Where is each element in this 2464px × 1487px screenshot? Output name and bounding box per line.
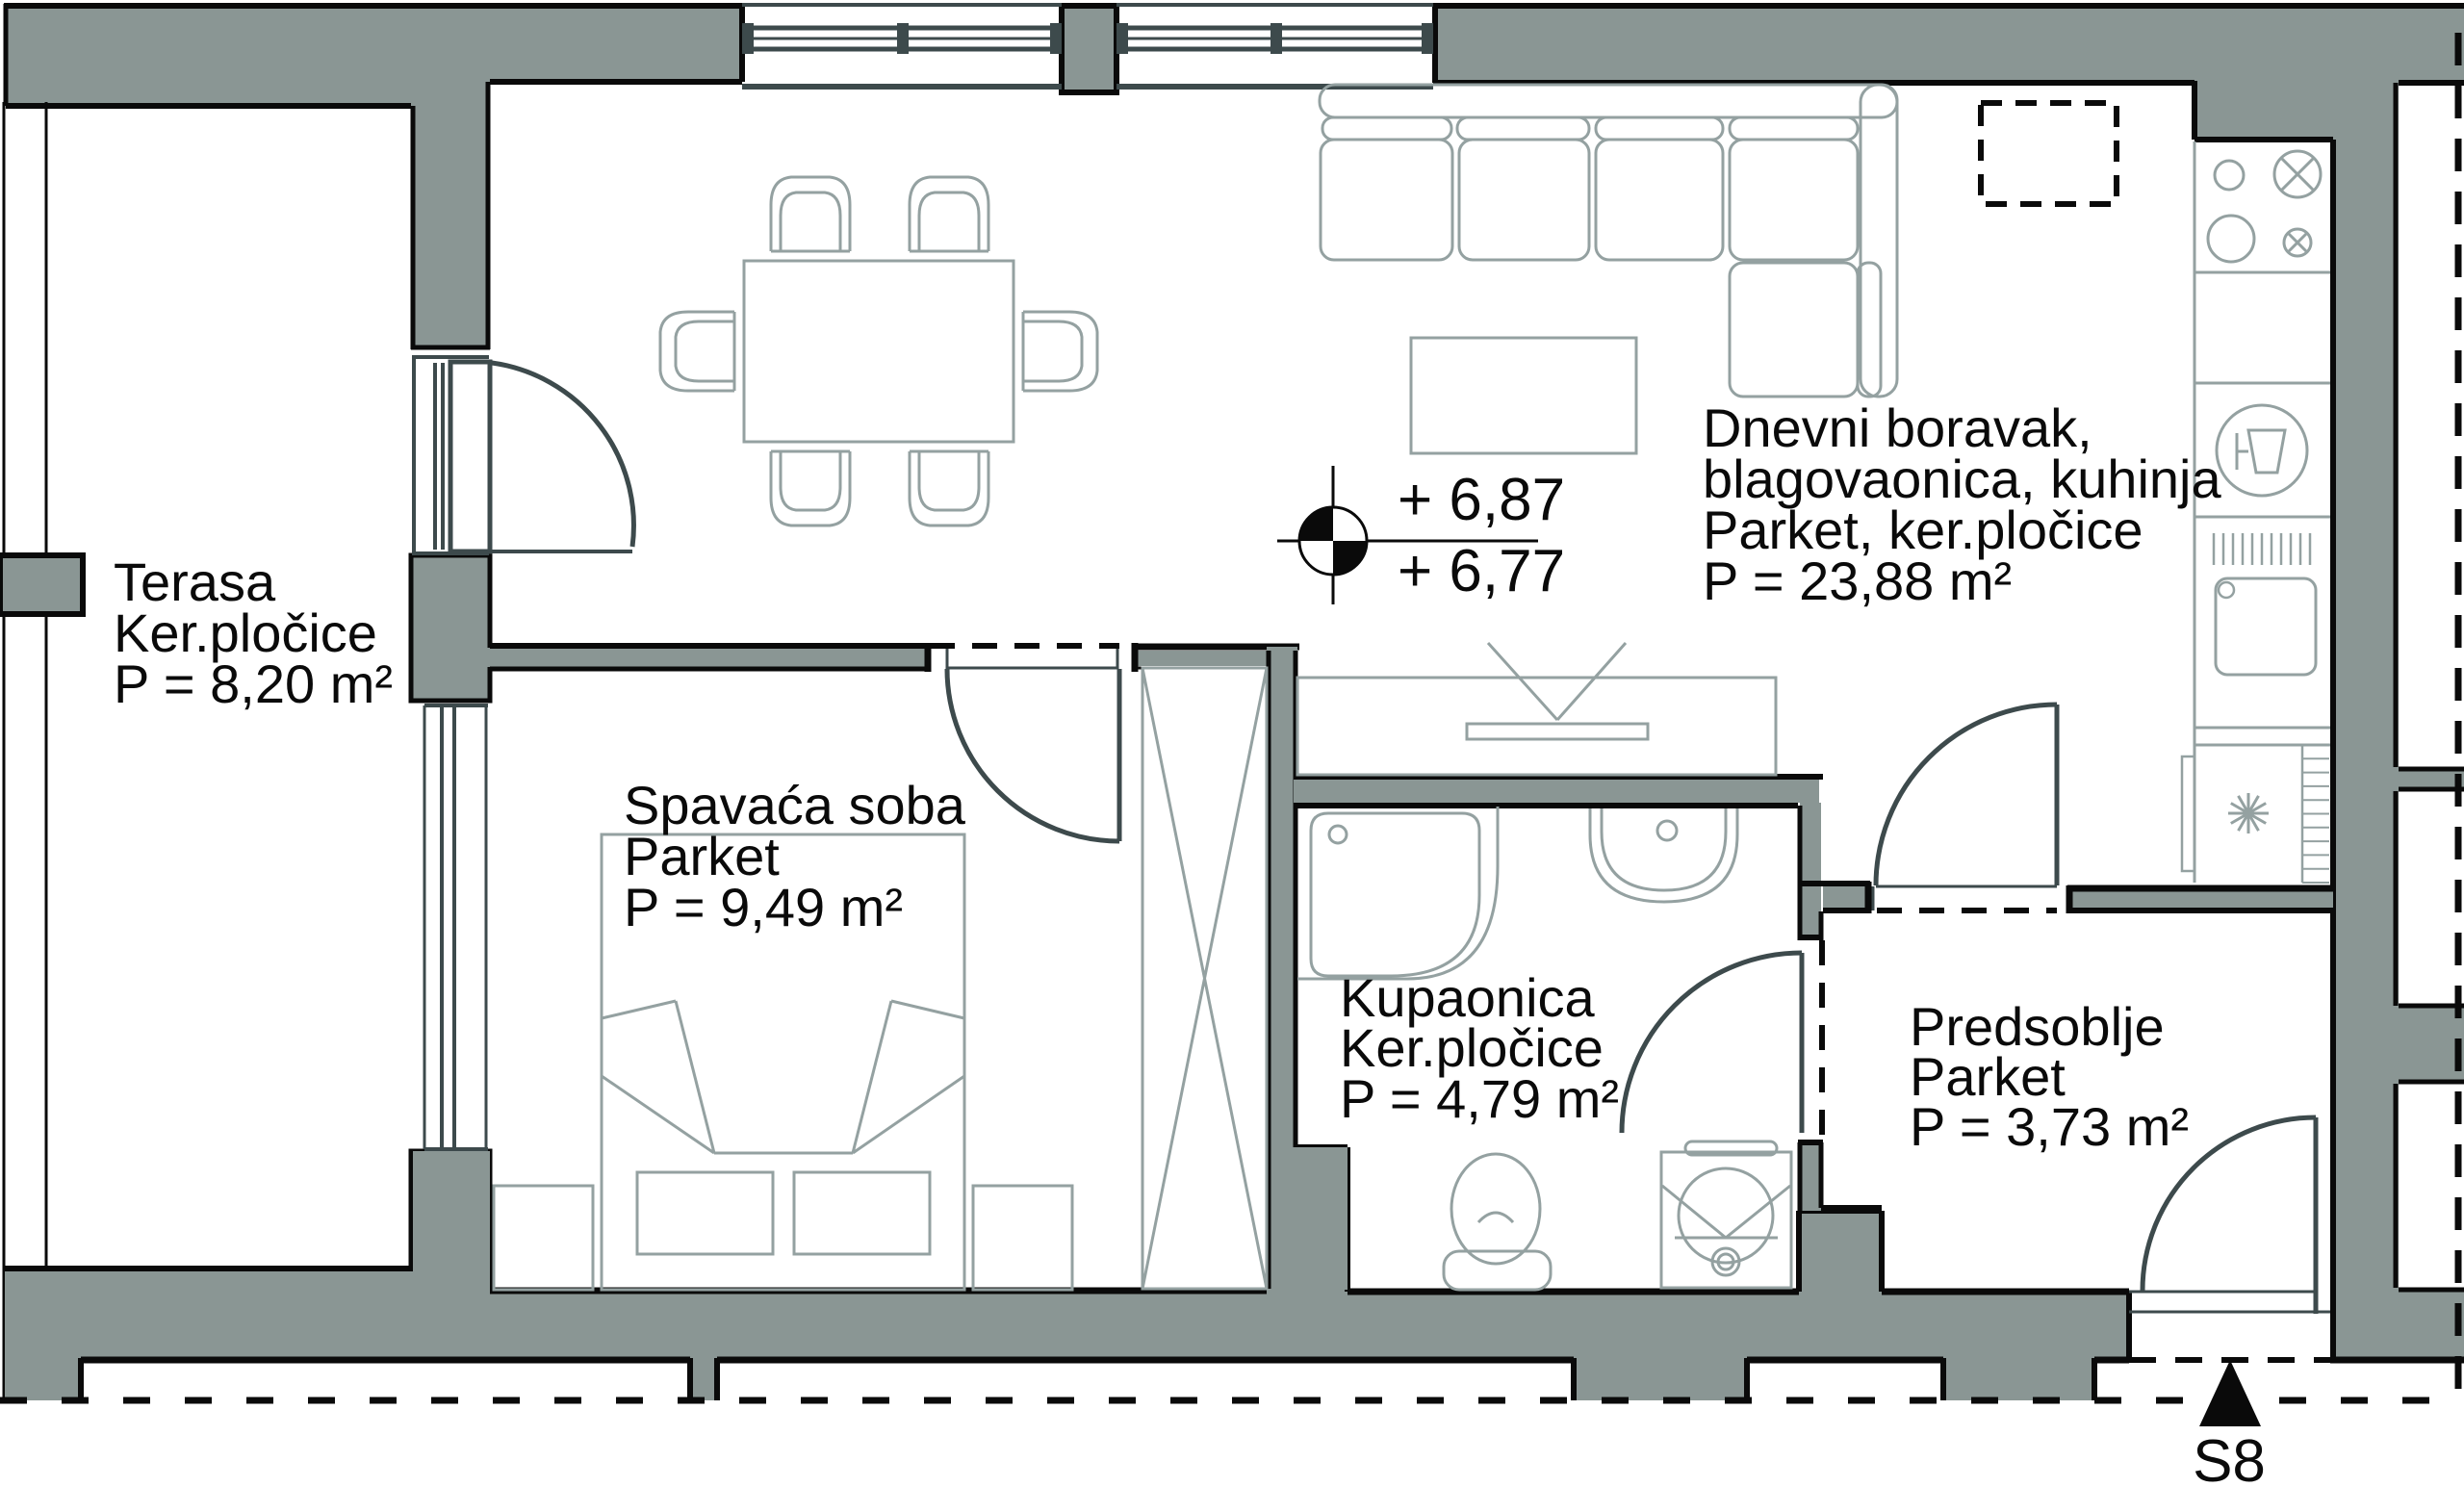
svg-text:S8: S8: [2193, 1428, 2266, 1487]
svg-text:+ 6,87: + 6,87: [1398, 467, 1565, 533]
svg-text:P = 4,79 m²: P = 4,79 m²: [1340, 1068, 1619, 1129]
svg-text:P = 9,49 m²: P = 9,49 m²: [624, 877, 903, 937]
svg-text:P = 8,20 m²: P = 8,20 m²: [114, 654, 393, 714]
svg-text:P = 3,73 m²: P = 3,73 m²: [1910, 1096, 2189, 1157]
svg-text:P = 23,88 m²: P = 23,88 m²: [1703, 551, 2012, 611]
svg-text:+ 6,77: + 6,77: [1398, 538, 1565, 604]
